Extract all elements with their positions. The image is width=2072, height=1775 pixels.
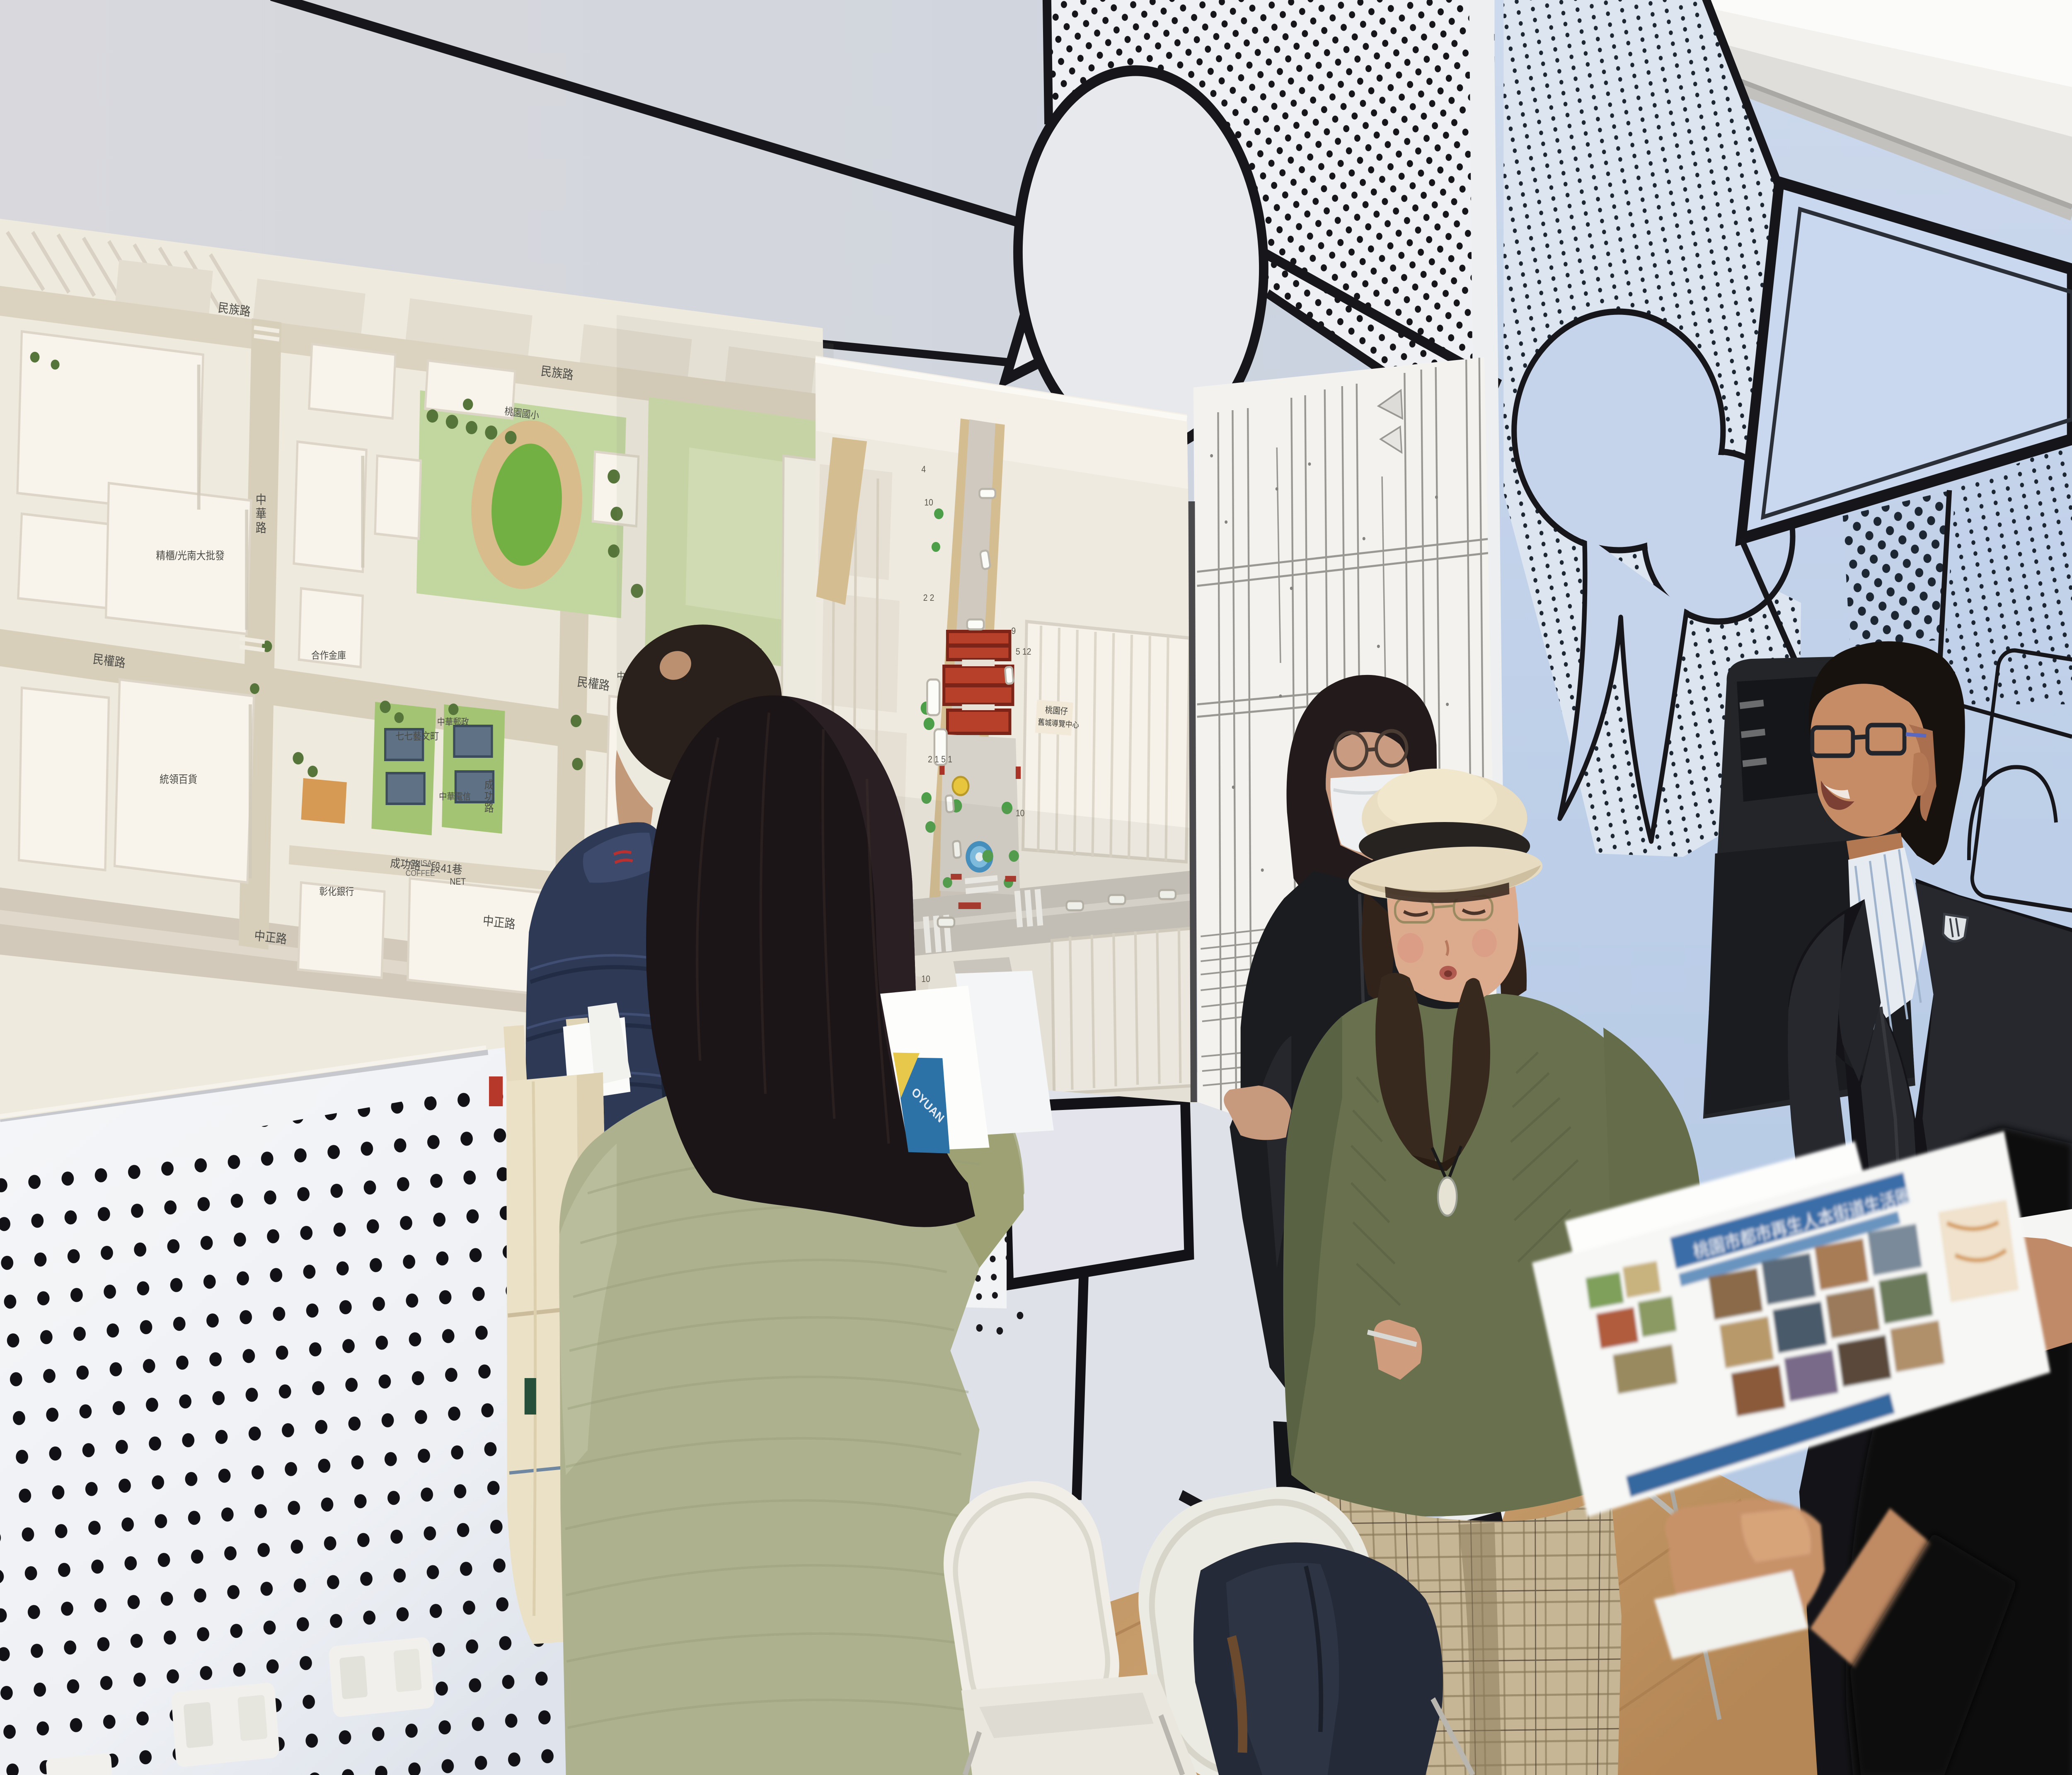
svg-text:中華電信: 中華電信 (439, 792, 471, 802)
svg-text:2 1 5 1: 2 1 5 1 (928, 754, 952, 764)
svg-text:9: 9 (1011, 626, 1016, 636)
svg-text:4: 4 (921, 464, 926, 474)
svg-text:NET: NET (450, 877, 466, 887)
svg-text:COFFEE: COFFEE (406, 868, 435, 878)
svg-text:成功路: 成功路 (483, 779, 494, 814)
svg-text:5 12: 5 12 (1016, 647, 1031, 657)
svg-text:統領百貨: 統領百貨 (160, 774, 197, 786)
svg-text:中華路: 中華路 (254, 493, 267, 535)
svg-text:2 2: 2 2 (923, 593, 934, 603)
svg-text:桃園仔: 桃園仔 (1045, 705, 1068, 717)
svg-text:10: 10 (924, 498, 933, 508)
svg-text:LOUISA: LOUISA (406, 858, 433, 868)
svg-text:精櫃/光南大批發: 精櫃/光南大批發 (156, 550, 225, 562)
svg-text:七七藝文町: 七七藝文町 (395, 731, 439, 742)
svg-text:彰化銀行: 彰化銀行 (319, 886, 354, 897)
svg-text:合作金庫: 合作金庫 (311, 650, 346, 661)
svg-text:中華郵政: 中華郵政 (437, 717, 469, 727)
